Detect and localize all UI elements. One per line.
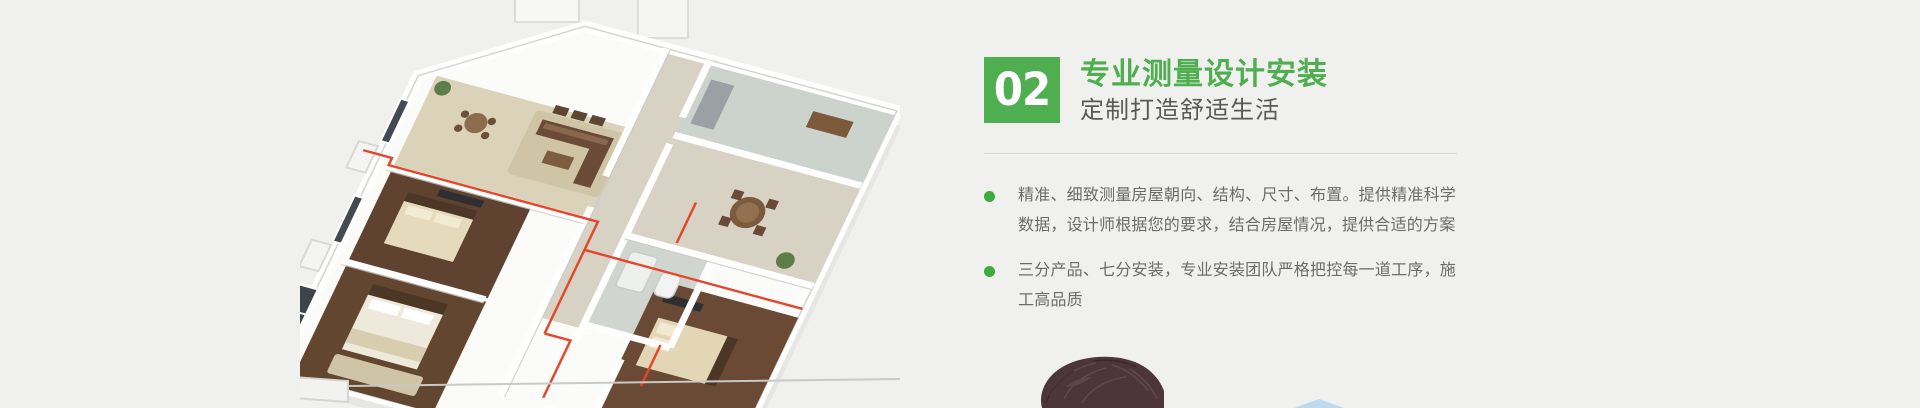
step-header: 02 专业测量设计安装 定制打造舒适生活 <box>984 57 1457 124</box>
wall-ledge <box>300 376 348 402</box>
floor-plan-illustration <box>300 0 900 408</box>
section-title: 专业测量设计安装 <box>1080 59 1328 91</box>
step-number-badge: 02 <box>984 57 1060 123</box>
bullet-dot-icon <box>984 191 995 202</box>
roof-block <box>638 0 688 38</box>
section-subtitle: 定制打造舒适生活 <box>1080 98 1328 124</box>
roof-block <box>515 0 579 22</box>
step-titles: 专业测量设计安装 定制打造舒适生活 <box>1080 57 1328 124</box>
bullet-text: 三分产品、七分安装，专业安装团队严格把控每一道工序，施工高品质 <box>1018 256 1456 316</box>
bullet-dot-icon <box>984 266 995 277</box>
step-content: 02 专业测量设计安装 定制打造舒适生活 精准、细致测量房屋朝向、结构、尺寸、布… <box>984 57 1457 316</box>
step-02-section: 02 专业测量设计安装 定制打造舒适生活 精准、细致测量房屋朝向、结构、尺寸、布… <box>0 0 1920 408</box>
bullet-item: 三分产品、七分安装，专业安装团队严格把控每一道工序，施工高品质 <box>984 256 1457 316</box>
divider <box>984 153 1457 154</box>
bullet-list: 精准、细致测量房屋朝向、结构、尺寸、布置。提供精准科学数据，设计师根据您的要求，… <box>984 181 1457 316</box>
step-number: 02 <box>994 67 1050 112</box>
accent-triangle <box>1294 399 1344 408</box>
person-head-illustration <box>1036 353 1164 408</box>
bullet-item: 精准、细致测量房屋朝向、结构、尺寸、布置。提供精准科学数据，设计师根据您的要求，… <box>984 181 1457 241</box>
bullet-text: 精准、细致测量房屋朝向、结构、尺寸、布置。提供精准科学数据，设计师根据您的要求，… <box>1018 181 1456 241</box>
